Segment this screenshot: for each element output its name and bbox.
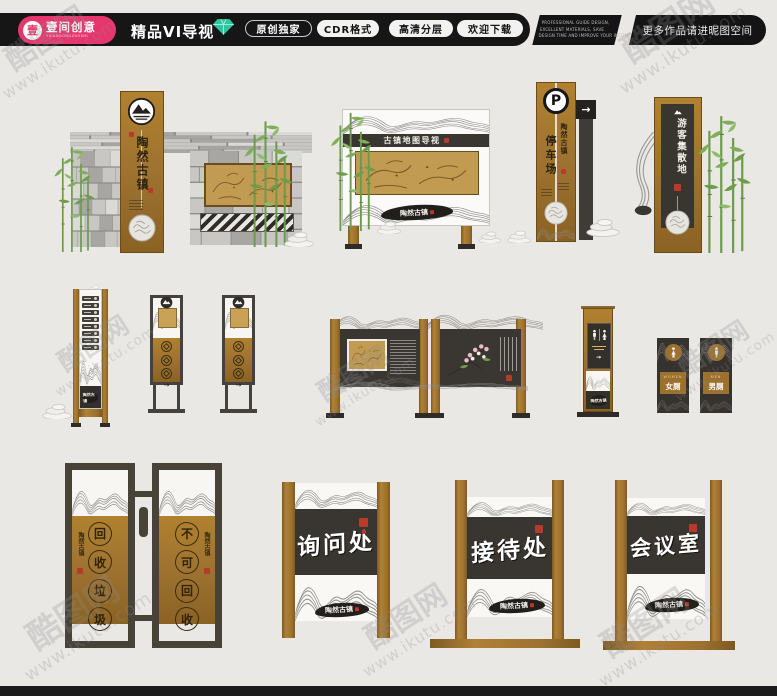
badge-hd[interactable]: 高清分层	[389, 20, 453, 37]
wave-pattern	[80, 352, 101, 386]
base-bar	[430, 639, 580, 648]
coin-glyph	[233, 368, 244, 379]
post-foot	[71, 423, 81, 427]
micro-text	[541, 187, 552, 198]
toilet-panel: →	[587, 323, 611, 369]
arrow-right-icon: →	[576, 100, 596, 119]
badge-download[interactable]: 欢迎下载	[457, 20, 523, 37]
entrance-gate-mockup: 陶然古镇	[50, 85, 312, 255]
logo-badge[interactable]: 壹 壹间创意 YIJIANGONGZUOSHI	[18, 16, 116, 44]
pebbles-icon	[585, 214, 621, 240]
plate-cn-text: 男厕	[703, 381, 729, 392]
badge-cdr[interactable]: CDR格式	[317, 20, 379, 37]
gate-totem-sign: 陶然古镇	[120, 91, 164, 253]
micro-text	[677, 196, 678, 210]
base-foot	[220, 409, 257, 413]
sign-panel: 会议室 陶然古镇	[627, 498, 705, 619]
pebbles-icon	[505, 230, 533, 243]
directory-slat	[82, 324, 99, 329]
gate-brand-text: 陶然古镇	[134, 136, 151, 192]
trash-char: 回	[88, 522, 112, 546]
plate-cn-text: 女厕	[660, 381, 686, 392]
bamboo-icon	[50, 140, 98, 252]
stone-medallion-icon	[665, 210, 690, 235]
frame-connector	[135, 615, 152, 621]
trash-char: 垃	[88, 579, 112, 603]
sign-title: 会议室	[630, 527, 702, 563]
wood-post	[102, 289, 108, 423]
sign-panel: 询问处 陶然古镇	[295, 483, 377, 621]
side-brand-text: 陶然古镇	[202, 532, 211, 556]
wave-pattern	[700, 396, 732, 412]
post-foot	[100, 423, 110, 427]
logo-title: 壹间创意	[46, 22, 96, 34]
trash-panel-nonrecyclable: 陶然古镇 不 可 回 收	[152, 463, 222, 648]
male-icon	[708, 344, 725, 361]
wood-post	[377, 482, 390, 638]
red-seal	[530, 603, 534, 607]
brand-band: 陶然古镇	[586, 391, 610, 409]
badge-original[interactable]: 原创独家	[245, 20, 312, 37]
directory-slat	[82, 345, 99, 350]
gem-icon	[213, 18, 234, 36]
directory-slat	[82, 338, 99, 343]
wave-pattern	[586, 371, 610, 391]
trash-char: 收	[175, 607, 199, 631]
wood-post	[330, 319, 340, 413]
title-band: 询问处	[295, 509, 377, 575]
frame-connector	[139, 507, 148, 537]
trash-char: 回	[175, 579, 199, 603]
wave-pattern	[333, 311, 425, 331]
meeting-sign-mockup: 会议室 陶然古镇	[595, 455, 777, 655]
micro-text-block	[500, 337, 517, 371]
micro-text	[129, 198, 143, 212]
stone-medallion-icon	[544, 201, 568, 225]
wave-pattern	[657, 396, 689, 412]
tourist-sign-mockup: 游客集散地	[630, 95, 777, 255]
totem-body: → 陶然古镇	[583, 308, 613, 412]
pedestal-sign-mockup: →	[222, 295, 255, 417]
coin-glyph	[161, 341, 172, 352]
red-seal	[674, 184, 681, 191]
post-foot	[326, 413, 344, 418]
more-works-button[interactable]: 更多作品请进昵图空间	[629, 15, 766, 45]
design-canvas: 壹 壹间创意 YIJIANGONGZUOSHI 精品VI导视 原创独家 CDR格…	[0, 0, 777, 696]
plum-branch-image	[444, 333, 496, 379]
trash-char: 可	[175, 550, 199, 574]
mountain-logo-icon	[232, 296, 245, 309]
leg	[225, 385, 228, 409]
pedestal-frame: →	[222, 295, 255, 385]
wave-pattern	[72, 482, 128, 516]
plate-band: MEN 男厕	[703, 372, 729, 394]
frame-connector	[135, 491, 152, 497]
base-foot	[148, 409, 185, 413]
arrow-right-icon: →	[596, 354, 601, 361]
painting-image	[347, 339, 387, 371]
logo-subtitle: YIJIANGONGZUOSHI	[46, 35, 96, 39]
map-thumb	[230, 308, 249, 328]
wave-pattern	[159, 482, 215, 516]
bamboo-icon	[238, 113, 298, 247]
sign-panel: 接待处 陶然古镇	[467, 497, 552, 617]
red-seal	[689, 524, 697, 532]
red-seal	[355, 607, 359, 611]
wave-box	[159, 470, 215, 516]
totem-base	[577, 412, 619, 417]
wood-post	[615, 480, 627, 641]
female-icon	[665, 344, 682, 361]
wood-base-band	[79, 409, 102, 417]
trash-screen-mockup: 陶然古镇 回 收 垃 圾 陶然古镇 不 可 回	[55, 455, 245, 655]
red-seal	[535, 525, 543, 533]
parking-sign-mockup: P 陶然古镇 停车场 →	[505, 80, 620, 250]
red-seal	[685, 602, 689, 606]
directory-slat	[82, 317, 99, 322]
bamboo-icon	[688, 107, 760, 253]
pedestal-body: →	[225, 338, 252, 382]
coin-glyph	[161, 355, 172, 366]
map-thumb	[158, 308, 177, 328]
wood-post	[431, 319, 440, 413]
trash-char: 不	[175, 522, 199, 546]
wave-pattern	[333, 379, 528, 391]
parking-panel: P 陶然古镇 停车场	[536, 82, 576, 242]
wood-post	[552, 480, 564, 639]
wave-pattern	[627, 574, 705, 619]
wave-pattern	[537, 224, 575, 241]
tourist-name-text: 游客集散地	[673, 118, 687, 176]
directory-slats	[80, 290, 101, 350]
wave-box	[72, 470, 128, 516]
directory-slat	[82, 310, 99, 315]
base-bar	[603, 641, 735, 650]
plate-en-text: MEN	[703, 375, 729, 379]
arrow-right-icon: →	[153, 382, 180, 389]
mountain-logo-icon	[160, 296, 173, 309]
sign-title: 接待处	[470, 528, 548, 569]
red-seal	[362, 530, 366, 534]
leg	[249, 385, 252, 409]
red-seal	[77, 568, 83, 574]
coin-glyph	[233, 355, 244, 366]
wood-post	[419, 319, 428, 413]
page-title: 精品VI导视	[131, 21, 214, 42]
post-foot	[512, 413, 530, 418]
red-seal	[430, 210, 434, 214]
trash-body: 陶然古镇 不 可 回 收	[159, 516, 215, 624]
map-board-mockup: 古镇地图导视 陶然古镇	[330, 103, 510, 255]
wave-pattern	[295, 483, 377, 509]
male-icon	[590, 329, 599, 341]
pedestal-body: →	[153, 338, 180, 382]
logo-seal-icon: 壹	[23, 21, 42, 40]
trash-panel-recyclable: 陶然古镇 回 收 垃 圾	[65, 463, 135, 648]
directory-panel: 陶然古镇	[79, 289, 102, 409]
trash-char: 圾	[88, 607, 112, 631]
stone-medallion-icon	[128, 214, 156, 242]
door-plate-men: MEN 男厕	[700, 338, 732, 413]
parking-name-text: 停车场	[542, 135, 558, 177]
directory-slat	[82, 331, 99, 336]
trash-body: 陶然古镇 回 收 垃 圾	[72, 516, 128, 624]
coin-glyph	[161, 368, 172, 379]
pedestal-sign-mockup: →	[150, 295, 183, 417]
post-foot	[427, 413, 444, 418]
trash-char: 收	[88, 550, 112, 574]
wave-pattern	[627, 498, 705, 516]
pebbles-icon	[476, 231, 504, 243]
red-seal	[148, 188, 153, 193]
female-icon	[600, 329, 609, 341]
side-brand-text: 陶然古镇	[76, 532, 85, 556]
wood-post	[710, 480, 722, 641]
wood-post	[455, 480, 467, 639]
micro-text	[594, 349, 604, 350]
inquiry-sign-mockup: 询问处 陶然古镇	[275, 460, 425, 645]
red-seal	[444, 138, 449, 143]
tagline: PROFESSIONAL GUIDE DESIGN,EXCELLENT MATE…	[532, 15, 621, 45]
micro-text-block	[390, 338, 416, 376]
coin-glyph	[233, 341, 244, 352]
directory-slat	[82, 296, 99, 301]
title-band: 会议室	[627, 516, 705, 574]
post-foot	[345, 244, 362, 249]
brand-text: 陶然古镇	[559, 123, 569, 155]
leg	[153, 385, 156, 409]
reception-sign-mockup: 接待处 陶然古镇	[430, 465, 605, 655]
plate-en-text: WOMEN	[660, 375, 686, 379]
sign-title: 询问处	[297, 522, 375, 563]
red-seal	[359, 518, 368, 527]
wood-post	[282, 482, 295, 638]
pedestal-frame: →	[150, 295, 183, 385]
red-seal	[561, 169, 566, 174]
micro-text	[558, 181, 569, 192]
leg	[177, 385, 180, 409]
title-band: 接待处	[467, 517, 552, 579]
wave-pattern	[467, 497, 552, 517]
plate-band: WOMEN 女厕	[660, 372, 686, 394]
red-seal	[204, 568, 210, 574]
door-plate-women: WOMEN 女厕	[657, 338, 689, 413]
footer-bar	[0, 686, 777, 696]
pebbles-icon	[282, 231, 316, 247]
parking-p-icon: P	[543, 88, 569, 114]
brand-band: 陶然古镇	[80, 386, 101, 408]
toilet-totem-mockup: → 陶然古镇	[555, 295, 630, 420]
post-foot	[458, 244, 475, 249]
micro-text	[592, 346, 606, 347]
bamboo-icon	[324, 105, 382, 231]
directory-slat	[82, 303, 99, 308]
arrow-right-icon: →	[225, 382, 252, 389]
pebbles-icon	[40, 403, 74, 419]
display-board-mockup	[305, 295, 540, 435]
wave-box	[586, 371, 610, 391]
mountain-icon	[673, 109, 683, 115]
mountain-logo-icon	[127, 97, 156, 126]
pebbles-icon	[374, 221, 404, 234]
